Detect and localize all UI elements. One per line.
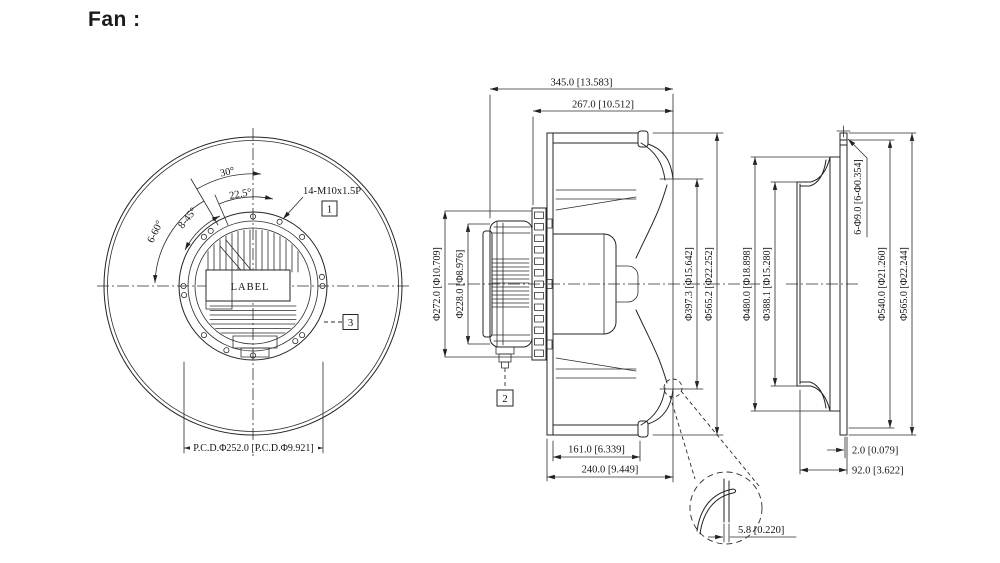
dim-92: 92.0 [3.622] (852, 466, 904, 477)
dim-540: Φ540.0 [Φ21.260] (877, 247, 888, 321)
angle-annotations: 30° 22.5° 8-45° 6-60° (146, 166, 273, 283)
dim-267: 267.0 [10.512] (572, 100, 634, 111)
dim-480: Φ480.0 [Φ18.898] (742, 247, 753, 321)
dim-240: 240.0 [9.449] (582, 465, 639, 476)
balloon-2: 2 (502, 393, 508, 405)
detail-dimension: 5.8 [0.220] (708, 524, 796, 542)
fan-technical-drawing: LABEL 30° 22.5° 8-45° 6-60° (0, 0, 1000, 563)
dim-388: Φ388.1 [Φ15.280] (762, 247, 773, 321)
dim-angle-8-45: 8-45° (176, 206, 199, 231)
balloon-1: 1 (327, 204, 333, 216)
inlet-ring-view: Φ480.0 [Φ18.898] Φ388.1 [Φ15.280] 6-Φ9.0… (742, 126, 916, 477)
dim-161: 161.0 [6.339] (568, 445, 625, 456)
balloon-3: 3 (348, 317, 354, 329)
pcd-dimension: P.C.D.Φ252.0 [P.C.D.Φ9.921] (184, 362, 323, 454)
side-view-dimensions: 345.0 [13.583] 267.0 [10.512] Φ272.0 [Φ1… (432, 78, 723, 482)
dim-6-holes: 6-Φ9.0 [6-Φ0.354] (853, 159, 864, 234)
inlet-ring-dimensions: Φ480.0 [Φ18.898] Φ388.1 [Φ15.280] 6-Φ9.0… (742, 133, 916, 477)
lip-section (697, 479, 736, 534)
thread-callout-text: 14-M10x1.5P (303, 186, 361, 197)
dim-565-0: Φ565.0 [Φ22.244] (899, 247, 910, 321)
dim-345: 345.0 [13.583] (550, 78, 612, 89)
dim-565-2: Φ565.2 [Φ22.252] (704, 247, 715, 321)
thread-callout: 14-M10x1.5P 1 (283, 186, 361, 219)
dim-angle-30: 30° (219, 166, 236, 180)
front-view: LABEL 30° 22.5° 8-45° 6-60° (97, 128, 412, 456)
motor-label: LABEL (231, 282, 270, 293)
detail-view: 5.8 [0.220] (690, 472, 796, 544)
dim-228: Φ228.0 [Φ8.976] (455, 250, 466, 319)
drawing-page: Fan : (0, 0, 1000, 563)
dim-5-8: 5.8 [0.220] (738, 525, 784, 536)
dim-272: Φ272.0 [Φ10.709] (432, 247, 443, 321)
side-view: 2 345.0 [13.583] 267.0 [10.512] Φ272.0 [… (432, 78, 770, 487)
dim-2-0: 2.0 [0.079] (852, 446, 898, 457)
dim-angle-22-5: 22.5° (228, 187, 252, 202)
dim-397: Φ397.3 [Φ15.642] (684, 247, 695, 321)
balloon-3-callout: 3 (324, 315, 358, 330)
pcd-dim-text: P.C.D.Φ252.0 [P.C.D.Φ9.921] (193, 443, 313, 454)
dim-angle-6-60: 6-60° (146, 219, 166, 245)
cable-gland: 2 (496, 347, 514, 406)
